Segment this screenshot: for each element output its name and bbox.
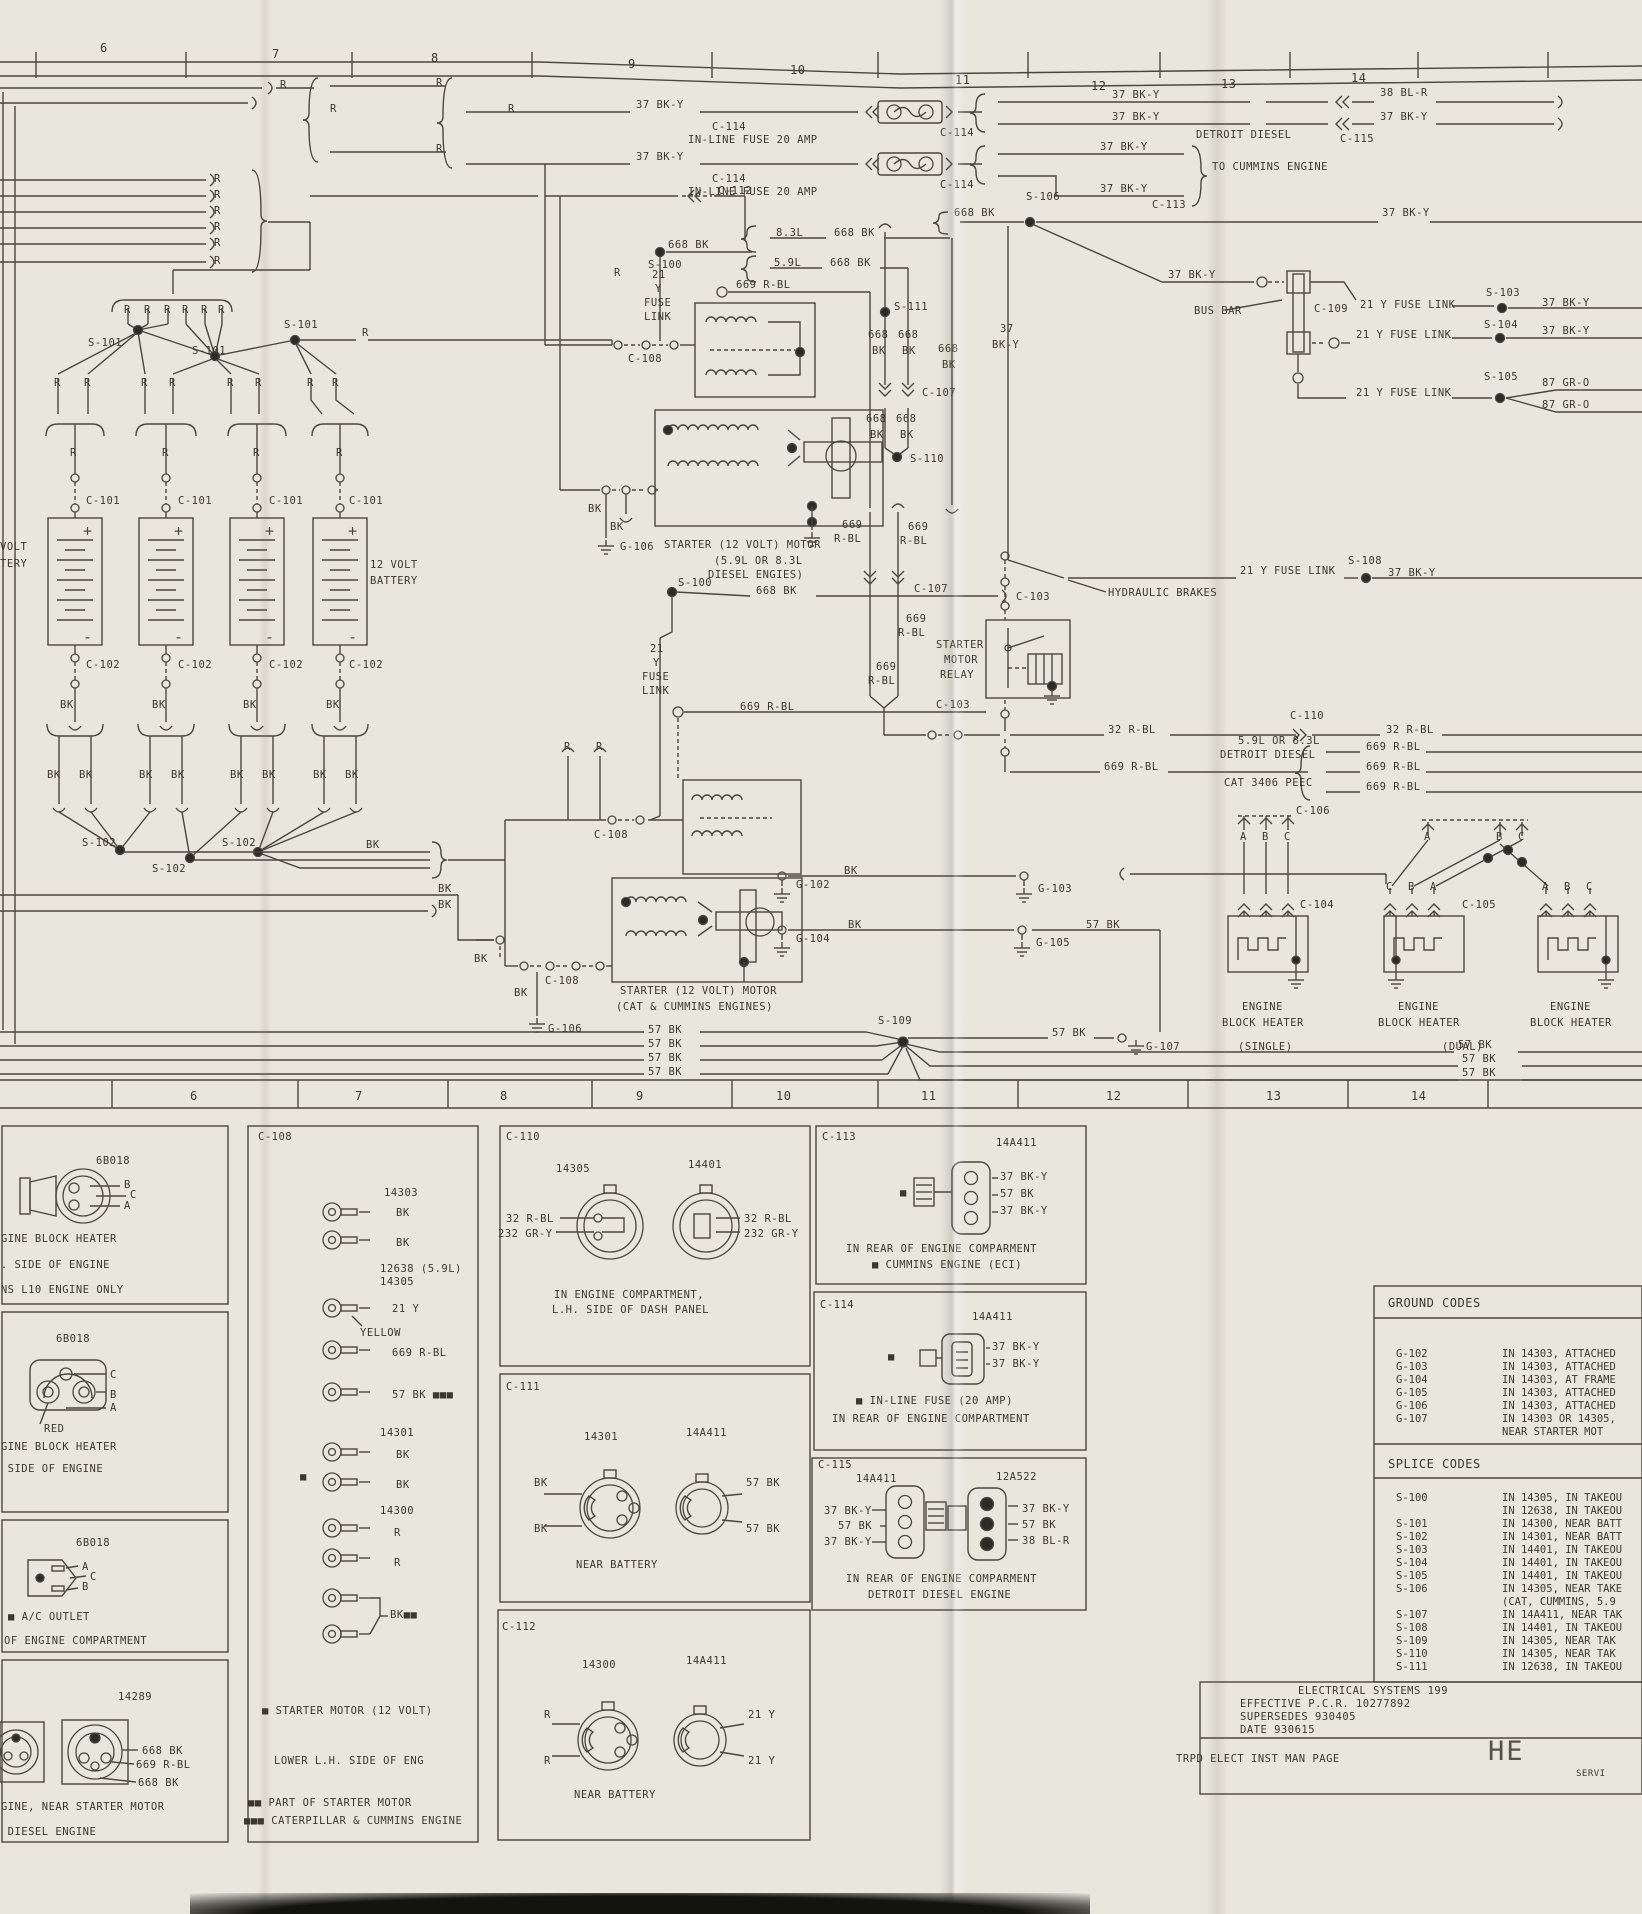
- diagram-label: R: [336, 448, 343, 459]
- diagram-label: C-103: [936, 700, 970, 711]
- diagram-label: STARTER (12 VOLT) MOTOR: [620, 986, 777, 997]
- description-cell: IN 14300, NEAR BATT: [1502, 1518, 1622, 1530]
- diagram-label: 57 BK: [1462, 1054, 1496, 1065]
- diagram-label: DETROIT DIESEL: [1196, 130, 1292, 141]
- diagram-label: S-101: [284, 320, 318, 331]
- code-cell: S-102: [1396, 1531, 1428, 1543]
- svg-text:+: +: [265, 522, 274, 540]
- diagram-label: 669: [876, 662, 896, 673]
- diagram-label: C: [1284, 832, 1291, 843]
- diagram-label: 38 BL-R: [1380, 88, 1428, 99]
- table-title: SPLICE CODES: [1388, 1458, 1481, 1470]
- diagram-label: 57 BK: [648, 1039, 682, 1050]
- diagram-label: C-102: [86, 660, 120, 671]
- diagram-label: OF ENGINE COMPARTMENT: [4, 1636, 147, 1647]
- diagram-label: ■ CUMMINS ENGINE (ECI): [872, 1260, 1022, 1271]
- diagram-label: NGINE BLOCK HEATER: [0, 1234, 117, 1245]
- diagram-label: ENGINE: [1550, 1002, 1591, 1013]
- diagram-label: ■: [888, 1352, 895, 1363]
- diagram-label: C-104: [1300, 900, 1334, 911]
- diagram-label: S-103: [1486, 288, 1520, 299]
- diagram-label: BK: [844, 866, 858, 877]
- diagram-label: A: [1240, 832, 1247, 843]
- page-code: HE: [1488, 1738, 1525, 1765]
- diagram-label: B: [82, 1582, 89, 1593]
- diagram-label: R: [394, 1558, 401, 1569]
- diagram-label: BK: [243, 700, 257, 711]
- diagram-label: BUS BAR: [1194, 306, 1242, 317]
- diagram-label: 37 BK-Y: [636, 152, 684, 163]
- diagram-label: INS L10 ENGINE ONLY: [0, 1285, 124, 1296]
- diagram-label: 37 BK-Y: [1542, 326, 1590, 337]
- diagram-label: 669: [906, 614, 926, 625]
- diagram-label: 668 BK: [834, 228, 875, 239]
- diagram-label: C-106: [1296, 806, 1330, 817]
- diagram-label: BK: [230, 770, 244, 781]
- diagram-label: 37 BK-Y: [1542, 298, 1590, 309]
- diagram-label: 6B018: [76, 1538, 110, 1549]
- diagram-label: BLOCK HEATER: [1378, 1018, 1460, 1029]
- description-cell: IN 14303, ATTACHED: [1502, 1387, 1616, 1399]
- code-cell: G-106: [1396, 1400, 1428, 1412]
- diagram-label: S-104: [1484, 320, 1518, 331]
- diagram-label: BK: [396, 1480, 410, 1491]
- diagram-label: 11: [921, 1090, 936, 1102]
- diagram-label: 10: [776, 1090, 791, 1102]
- diagram-label: BK: [438, 900, 452, 911]
- diagram-label: 37 BK-Y: [636, 100, 684, 111]
- diagram-label: 12A522: [996, 1472, 1037, 1483]
- diagram-label: 37 BK-Y: [1100, 184, 1148, 195]
- diagram-label: A: [1542, 882, 1549, 893]
- diagram-label: 9: [636, 1090, 644, 1102]
- diagram-label: R: [330, 104, 337, 115]
- diagram-label: 14300: [380, 1506, 414, 1517]
- diagram-label: 7: [272, 48, 280, 60]
- diagram-label: IN-LINE FUSE 20 AMP: [688, 135, 818, 146]
- diagram-label: R: [218, 305, 225, 316]
- diagram-label: 9: [628, 58, 636, 70]
- diagram-label: 669 R-BL: [740, 702, 795, 713]
- diagram-label: 14: [1351, 72, 1366, 84]
- diagram-label: R: [182, 305, 189, 316]
- diagram-label: 37 BK-Y: [1112, 90, 1160, 101]
- diagram-label: 37 BK-Y: [824, 1537, 872, 1548]
- diagram-label: 669 R-BL: [1366, 742, 1421, 753]
- diagram-label: B: [110, 1390, 117, 1401]
- diagram-label: 6B018: [56, 1334, 90, 1345]
- diagram-label: C-102: [269, 660, 303, 671]
- diagram-label: 32 R-BL: [1386, 725, 1434, 736]
- diagram-label: BK-Y: [992, 340, 1019, 351]
- diagram-label: R-BL: [900, 536, 927, 547]
- diagram-label: R: [162, 448, 169, 459]
- diagram-label: 57 BK: [1462, 1068, 1496, 1079]
- diagram-label: S-100: [678, 578, 712, 589]
- diagram-label: 37 BK-Y: [1000, 1206, 1048, 1217]
- diagram-label: S-108: [1348, 556, 1382, 567]
- diagram-label: RED: [44, 1424, 64, 1435]
- diagram-label: 21 Y: [748, 1710, 775, 1721]
- description-cell: IN 14303, ATTACHED: [1502, 1400, 1616, 1412]
- diagram-label: C-101: [178, 496, 212, 507]
- description-cell: NEAR STARTER MOT: [1502, 1426, 1603, 1438]
- diagram-label: C-114: [712, 174, 746, 185]
- diagram-label: 669: [908, 522, 928, 533]
- description-cell: IN 14305, NEAR TAK: [1502, 1648, 1616, 1660]
- diagram-label: C-113: [1152, 200, 1186, 211]
- diagram-label: R: [84, 378, 91, 389]
- diagram-label: BK: [872, 346, 886, 357]
- diagram-label: 232 GR-Y: [498, 1229, 553, 1240]
- diagram-label: 6: [190, 1090, 198, 1102]
- svg-text:+: +: [348, 522, 357, 540]
- diagram-label: TO CUMMINS ENGINE: [1212, 162, 1328, 173]
- diagram-label: A: [110, 1403, 117, 1414]
- code-cell: G-102: [1396, 1348, 1428, 1360]
- diagram-label: ■■■ CATERPILLAR & CUMMINS ENGINE: [244, 1816, 462, 1827]
- diagram-label: S-101: [192, 346, 226, 357]
- diagram-label: R-BL: [868, 676, 895, 687]
- diagram-label: C-102: [178, 660, 212, 671]
- diagram-label: 21 Y: [392, 1304, 419, 1315]
- diagram-label: 12638 (5.9L): [380, 1264, 462, 1275]
- code-cell: S-100: [1396, 1492, 1428, 1504]
- diagram-label: 37: [1000, 324, 1014, 335]
- diagram-label: C-112: [718, 186, 752, 197]
- diagram-label: 669 R-BL: [1366, 782, 1421, 793]
- description-cell: IN 14401, IN TAKEOU: [1502, 1622, 1622, 1634]
- diagram-label: 37 BK-Y: [1168, 270, 1216, 281]
- diagram-label: C: [1386, 882, 1393, 893]
- diagram-label: C: [90, 1572, 97, 1583]
- diagram-label: BK: [60, 700, 74, 711]
- description-cell: IN 14A411, NEAR TAK: [1502, 1609, 1622, 1621]
- diagram-label: 14301: [380, 1428, 414, 1439]
- diagram-label: 669: [842, 520, 862, 531]
- diagram-label: C-108: [594, 830, 628, 841]
- diagram-label: C-108: [258, 1132, 292, 1143]
- diagram-label: 37 BK-Y: [824, 1506, 872, 1517]
- diagram-label: S-102: [82, 838, 116, 849]
- diagram-label: YELLOW: [360, 1328, 401, 1339]
- diagram-label: R: [436, 144, 443, 155]
- diagram-label: 14A411: [856, 1474, 897, 1485]
- diagram-label: 37 BK-Y: [1380, 112, 1428, 123]
- code-cell: S-104: [1396, 1557, 1428, 1569]
- diagram-label: BK■■: [390, 1610, 417, 1621]
- diagram-label: IN REAR OF ENGINE COMPARMENT: [846, 1244, 1037, 1255]
- diagram-label: 37 BK-Y: [1000, 1172, 1048, 1183]
- diagram-label: ■■ PART OF STARTER MOTOR: [248, 1798, 412, 1809]
- diagram-label: IN REAR OF ENGINE COMPARMENT: [846, 1574, 1037, 1585]
- diagram-label: NEAR BATTERY: [576, 1560, 658, 1571]
- diagram-label: R: [144, 305, 151, 316]
- diagram-label: A: [124, 1201, 131, 1212]
- diagram-label: 21 Y FUSE LINK: [1240, 566, 1336, 577]
- diagram-label: 57 BK: [1000, 1189, 1034, 1200]
- diagram-label: 38 BL-R: [1022, 1536, 1070, 1547]
- diagram-label: DETROIT DIESEL: [1220, 750, 1316, 761]
- diagram-label: 21 Y FUSE LINK: [1360, 300, 1456, 311]
- diagram-label: 14305: [556, 1164, 590, 1175]
- diagram-label: 37 BK-Y: [1022, 1504, 1070, 1515]
- description-cell: IN 14401, IN TAKEOU: [1502, 1544, 1622, 1556]
- diagram-label: ■ IN-LINE FUSE (20 AMP): [856, 1396, 1013, 1407]
- diagram-label: R: [436, 78, 443, 89]
- footer-line: ELECTRICAL SYSTEMS 199: [1298, 1686, 1448, 1697]
- diagram-label: (SINGLE): [1238, 1042, 1293, 1053]
- diagram-label: C: [1586, 882, 1593, 893]
- diagram-label: 668: [868, 330, 888, 341]
- code-cell: S-106: [1396, 1583, 1428, 1595]
- diagram-label: C-115: [818, 1460, 852, 1471]
- diagram-label: C-101: [349, 496, 383, 507]
- diagram-label: R: [227, 378, 234, 389]
- diagram-label: C-115: [1340, 134, 1374, 145]
- diagram-label: H. SIDE OF ENGINE: [0, 1260, 110, 1271]
- diagram-label: NEAR BATTERY: [574, 1790, 656, 1801]
- svg-text:-: -: [265, 628, 274, 646]
- diagram-label: A: [1430, 882, 1437, 893]
- diagram-label: 669 R-BL: [1104, 762, 1159, 773]
- diagram-label: 21 Y FUSE LINK: [1356, 330, 1452, 341]
- diagram-label: BK: [474, 954, 488, 965]
- diagram-label: 37 BK-Y: [992, 1342, 1040, 1353]
- diagram-label: C-101: [269, 496, 303, 507]
- diagram-label: 232 GR-Y: [744, 1229, 799, 1240]
- diagram-label: A: [82, 1562, 89, 1573]
- diagram-label: 32 R-BL: [1108, 725, 1156, 736]
- diagram-label: G-107: [1146, 1042, 1180, 1053]
- diagram-label: DIESEL ENGIES): [708, 570, 804, 581]
- diagram-label: 37 BK-Y: [1100, 142, 1148, 153]
- diagram-label: G-106: [620, 542, 654, 553]
- diagram-label: IN REAR OF ENGINE COMPARTMENT: [832, 1414, 1030, 1425]
- diagram-label: 669 R-BL: [1366, 762, 1421, 773]
- diagram-label: R: [508, 104, 515, 115]
- diagram-label: VOLT: [0, 542, 27, 553]
- diagram-label: LINK: [642, 686, 669, 697]
- diagram-label: Y: [655, 284, 662, 295]
- diagram-label: 10: [790, 64, 805, 76]
- diagram-label: R: [307, 378, 314, 389]
- diagram-label: C-103: [1016, 592, 1050, 603]
- diagram-label: BK: [870, 430, 884, 441]
- description-cell: (CAT, CUMMINS, 5.9: [1502, 1596, 1616, 1608]
- diagram-label: C: [130, 1190, 137, 1201]
- diagram-label: 14300: [582, 1660, 616, 1671]
- diagram-label: R: [164, 305, 171, 316]
- diagram-label: C-109: [1314, 304, 1348, 315]
- diagram-label: C-114: [940, 128, 974, 139]
- diagram-label: FUSE: [642, 672, 669, 683]
- diagram-label: 21: [652, 270, 666, 281]
- svg-text:-: -: [174, 628, 183, 646]
- code-cell: S-108: [1396, 1622, 1428, 1634]
- diagram-label: S-111: [894, 302, 928, 313]
- diagram-label: 12 VOLT: [370, 560, 418, 571]
- diagram-label: R: [332, 378, 339, 389]
- diagram-label: 12: [1091, 80, 1106, 92]
- diagram-label: R: [169, 378, 176, 389]
- diagram-label: C-114: [712, 122, 746, 133]
- diagram-label: 37 BK-Y: [1112, 112, 1160, 123]
- diagram-label: BK: [47, 770, 61, 781]
- diagram-label: 668: [896, 414, 916, 425]
- diagram-label: TERY: [0, 559, 27, 570]
- diagram-label: 14303: [384, 1188, 418, 1199]
- diagram-label: BK: [396, 1208, 410, 1219]
- diagram-label: G-105: [1036, 938, 1070, 949]
- diagram-label: (DUAL): [1442, 1042, 1483, 1053]
- diagram-label: BK: [438, 884, 452, 895]
- diagram-label: 6: [100, 42, 108, 54]
- diagram-label: 8: [431, 52, 439, 64]
- diagram-label: ■: [300, 1472, 307, 1483]
- diagram-label: MOTOR: [944, 655, 978, 666]
- diagram-label: BLOCK HEATER: [1222, 1018, 1304, 1029]
- diagram-label: FUSE: [644, 298, 671, 309]
- diagram-label: S-110: [910, 454, 944, 465]
- diagram-label: BK: [139, 770, 153, 781]
- svg-text:+: +: [174, 522, 183, 540]
- diagram-label: R: [214, 206, 221, 217]
- code-cell: S-111: [1396, 1661, 1428, 1673]
- diagram-label: R: [596, 742, 603, 753]
- diagram-label: 57 BK: [746, 1524, 780, 1535]
- diagram-label: 13: [1221, 78, 1236, 90]
- diagram-label: R: [614, 268, 621, 279]
- diagram-label: BK: [262, 770, 276, 781]
- diagram-label: BK: [902, 346, 916, 357]
- description-cell: IN 12638, IN TAKEOU: [1502, 1661, 1622, 1673]
- description-cell: IN 14301, NEAR BATT: [1502, 1531, 1622, 1543]
- diagram-label: 669 R-BL: [392, 1348, 447, 1359]
- diagram-label: 57 BK: [648, 1067, 682, 1078]
- diagram-label: C-102: [349, 660, 383, 671]
- diagram-label: R: [214, 190, 221, 201]
- diagram-label: S-102: [152, 864, 186, 875]
- diagram-label: R: [214, 222, 221, 233]
- diagram-label: 668 BK: [142, 1746, 183, 1757]
- diagram-label: C-110: [506, 1132, 540, 1143]
- diagram-label: 37 BK-Y: [992, 1359, 1040, 1370]
- diagram-label: S-109: [878, 1016, 912, 1027]
- diagram-label: 57 BK ■■■: [392, 1390, 453, 1401]
- description-cell: IN 14401, IN TAKEOU: [1502, 1557, 1622, 1569]
- diagram-label: 7: [355, 1090, 363, 1102]
- diagram-label: C-108: [545, 976, 579, 987]
- diagram-label: C-111: [506, 1382, 540, 1393]
- diagram-label: R: [214, 174, 221, 185]
- table-title: GROUND CODES: [1388, 1297, 1481, 1309]
- diagram-label: 668 BK: [756, 586, 797, 597]
- diagram-label: BATTERY: [370, 576, 418, 587]
- diagram-label: LOWER L.H. SIDE OF ENG: [274, 1756, 424, 1767]
- diagram-label: C: [110, 1370, 117, 1381]
- diagram-label: C-108: [628, 354, 662, 365]
- diagram-label: 57 BK: [746, 1478, 780, 1489]
- diagram-label: NGINE BLOCK HEATER: [0, 1442, 117, 1453]
- diagram-label: BK: [396, 1450, 410, 1461]
- code-cell: G-104: [1396, 1374, 1428, 1386]
- diagram-label: LINK: [644, 312, 671, 323]
- diagram-label: B: [1564, 882, 1571, 893]
- diagram-label: C-113: [822, 1132, 856, 1143]
- diagram-label: R: [124, 305, 131, 316]
- diagram-label: BK: [534, 1524, 548, 1535]
- diagram-label: 57 BK: [838, 1521, 872, 1532]
- description-cell: IN 14305, NEAR TAKE: [1502, 1583, 1622, 1595]
- diagram-label: S-105: [1484, 372, 1518, 383]
- diagram-label: 37 BK-Y: [1382, 208, 1430, 219]
- footer-line: EFFECTIVE P.C.R. 10277892: [1240, 1699, 1411, 1710]
- diagram-label: Y: [653, 658, 660, 669]
- diagram-label: ENGINE: [1398, 1002, 1439, 1013]
- diagram-label: BK: [942, 360, 956, 371]
- diagram-label: STARTER (12 VOLT) MOTOR: [664, 540, 821, 551]
- diagram-label: R: [70, 448, 77, 459]
- diagram-label: (5.9L OR 8.3L: [714, 556, 803, 567]
- diagram-label: C: [1518, 832, 1525, 843]
- diagram-label: BK: [345, 770, 359, 781]
- diagram-label: R: [214, 256, 221, 267]
- diagram-label: 8.3L: [776, 228, 803, 239]
- diagram-label: 57 BK: [648, 1053, 682, 1064]
- description-cell: IN 14303 OR 14305,: [1502, 1413, 1616, 1425]
- diagram-label: B: [1262, 832, 1269, 843]
- diagram-label: 32 R-BL: [506, 1214, 554, 1225]
- diagram-label: BK: [313, 770, 327, 781]
- code-cell: G-103: [1396, 1361, 1428, 1373]
- description-cell: IN 14305, NEAR TAK: [1502, 1635, 1616, 1647]
- diagram-label: S-106: [1026, 192, 1060, 203]
- svg-text:-: -: [83, 628, 92, 646]
- diagram-label: 21 Y FUSE LINK: [1356, 388, 1452, 399]
- diagram-label: BK: [900, 430, 914, 441]
- diagram-label: 11: [955, 74, 970, 86]
- svg-text:-: -: [348, 628, 357, 646]
- diagram-label: B: [1408, 882, 1415, 893]
- diagram-label: R: [253, 448, 260, 459]
- diagram-label: BK: [79, 770, 93, 781]
- diagram-label: 13: [1266, 1090, 1281, 1102]
- diagram-label: DETROIT DIESEL ENGINE: [868, 1590, 1011, 1601]
- diagram-label: C-107: [922, 388, 956, 399]
- code-cell: S-101: [1396, 1518, 1428, 1530]
- diagram-label: BK: [396, 1238, 410, 1249]
- diagram-label: B: [1496, 832, 1503, 843]
- service-label: SERVI: [1576, 1770, 1606, 1779]
- diagram-label: A: [1424, 832, 1431, 843]
- diagram-label: ENGINE: [1242, 1002, 1283, 1013]
- diagram-label: R: [201, 305, 208, 316]
- diagram-label: C-110: [1290, 711, 1324, 722]
- wiring-diagram-page: +-+-+-+- RRRRRRRRRRRRRRRRRS-101S-101S-10…: [0, 0, 1642, 1914]
- code-cell: S-105: [1396, 1570, 1428, 1582]
- diagram-label: 14305: [380, 1277, 414, 1288]
- diagram-label: C-114: [940, 180, 974, 191]
- diagram-label: L.H. SIDE OF DASH PANEL: [552, 1305, 709, 1316]
- diagram-label: 14A411: [686, 1656, 727, 1667]
- description-cell: IN 14303, ATTACHED: [1502, 1348, 1616, 1360]
- diagram-label: 14301: [584, 1432, 618, 1443]
- diagram-label: R: [214, 238, 221, 249]
- diagram-label: 21: [650, 644, 664, 655]
- diagram-label: G-103: [1038, 884, 1072, 895]
- diagram-label: 14A411: [686, 1428, 727, 1439]
